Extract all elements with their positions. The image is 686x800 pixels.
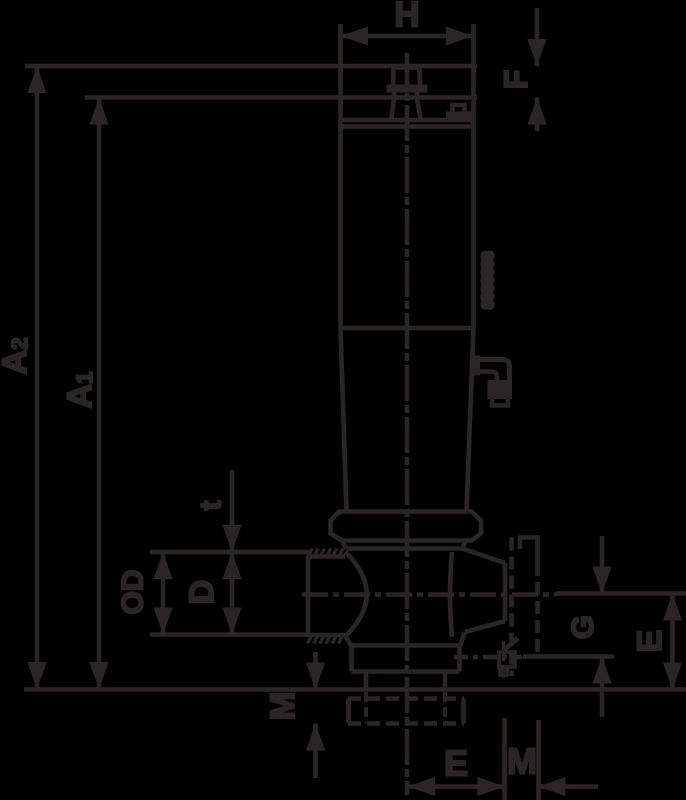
svg-text:M: M (507, 741, 537, 782)
svg-text:H: H (394, 0, 419, 35)
svg-text:t: t (195, 501, 228, 511)
svg-text:D: D (183, 580, 221, 605)
svg-text:8888888: 8888888 (480, 251, 497, 309)
svg-text:E: E (444, 743, 468, 784)
svg-text:G: G (565, 615, 600, 639)
svg-text:OD: OD (117, 570, 150, 615)
svg-text:E: E (631, 630, 669, 653)
svg-text:M: M (264, 692, 302, 720)
svg-text:F: F (498, 70, 534, 90)
